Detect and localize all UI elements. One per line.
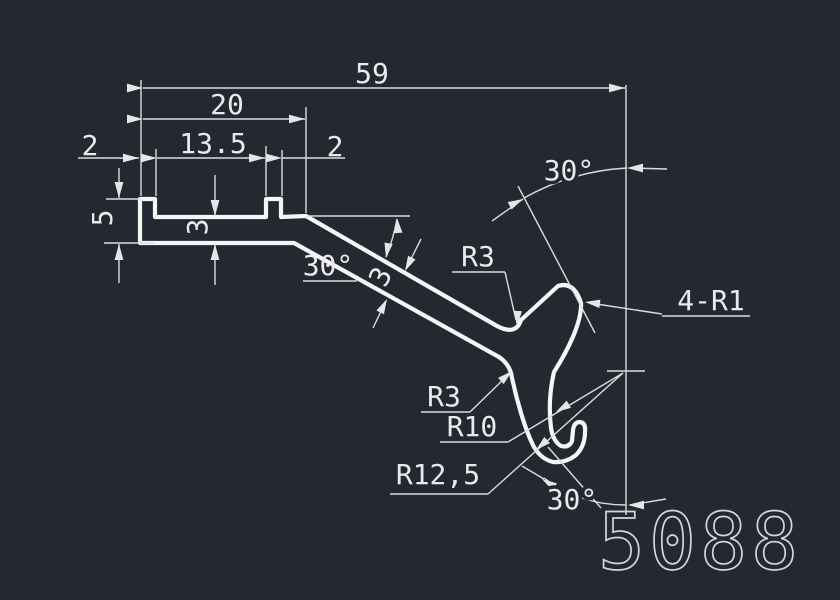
part-number: 5088 <box>598 498 802 588</box>
arrowhead <box>584 298 600 308</box>
arrowhead <box>211 244 220 260</box>
arrowhead <box>382 242 393 258</box>
arrowhead <box>376 297 390 314</box>
dim-text-lip-left: 2 <box>82 129 99 162</box>
arrowhead <box>115 244 124 260</box>
arrowhead <box>266 154 282 163</box>
dim-text-floor-thickness: 3 <box>181 219 214 236</box>
arrowhead <box>123 154 139 163</box>
dim-text-top-width: 20 <box>210 88 244 121</box>
dim-text-height-left: 5 <box>86 210 119 227</box>
cad-drawing-viewport: 59 20 13.5 2 2 5 3 3 30° 30° 30° R3 R3 R… <box>0 0 840 600</box>
profile-outline <box>140 199 585 462</box>
dimension-texts: 59 20 13.5 2 2 5 3 3 30° 30° 30° R3 R3 R… <box>82 57 745 516</box>
cad-drawing-canvas: 59 20 13.5 2 2 5 3 3 30° 30° 30° R3 R3 R… <box>0 0 840 600</box>
label-text-4-r1: 4-R1 <box>677 284 744 317</box>
arrowhead <box>627 164 643 173</box>
arrowhead <box>115 182 124 198</box>
arrowhead <box>609 84 625 93</box>
angle-text-top: 30° <box>544 154 595 187</box>
arrowhead <box>141 154 157 163</box>
angle-text-slope: 30° <box>303 249 354 282</box>
dim-text-slot-width: 13.5 <box>179 127 246 160</box>
radius-text-r3-side: R3 <box>427 380 461 413</box>
arrowhead <box>289 115 305 124</box>
radius-text-r3-top: R3 <box>461 240 495 273</box>
angle-text-bottom: 30° <box>547 483 598 516</box>
radius-text-r10: R10 <box>447 410 498 443</box>
arrowhead <box>211 200 220 216</box>
profile-path <box>140 199 585 462</box>
radius-text-r12-5: R12,5 <box>396 458 480 491</box>
arrowhead <box>249 154 265 163</box>
arc-angle-bottom-tail-left <box>522 466 544 479</box>
dim-text-tab-right: 2 <box>327 130 344 163</box>
leader-r12-5 <box>488 373 623 494</box>
dim-text-total-width: 59 <box>355 57 389 90</box>
